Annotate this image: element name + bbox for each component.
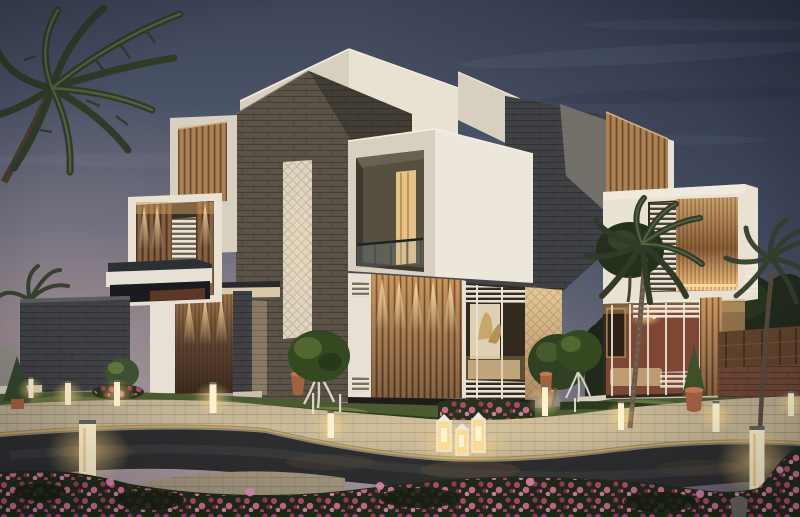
villa-dusk-rendering	[0, 0, 800, 517]
vignette-overlay	[0, 0, 800, 517]
